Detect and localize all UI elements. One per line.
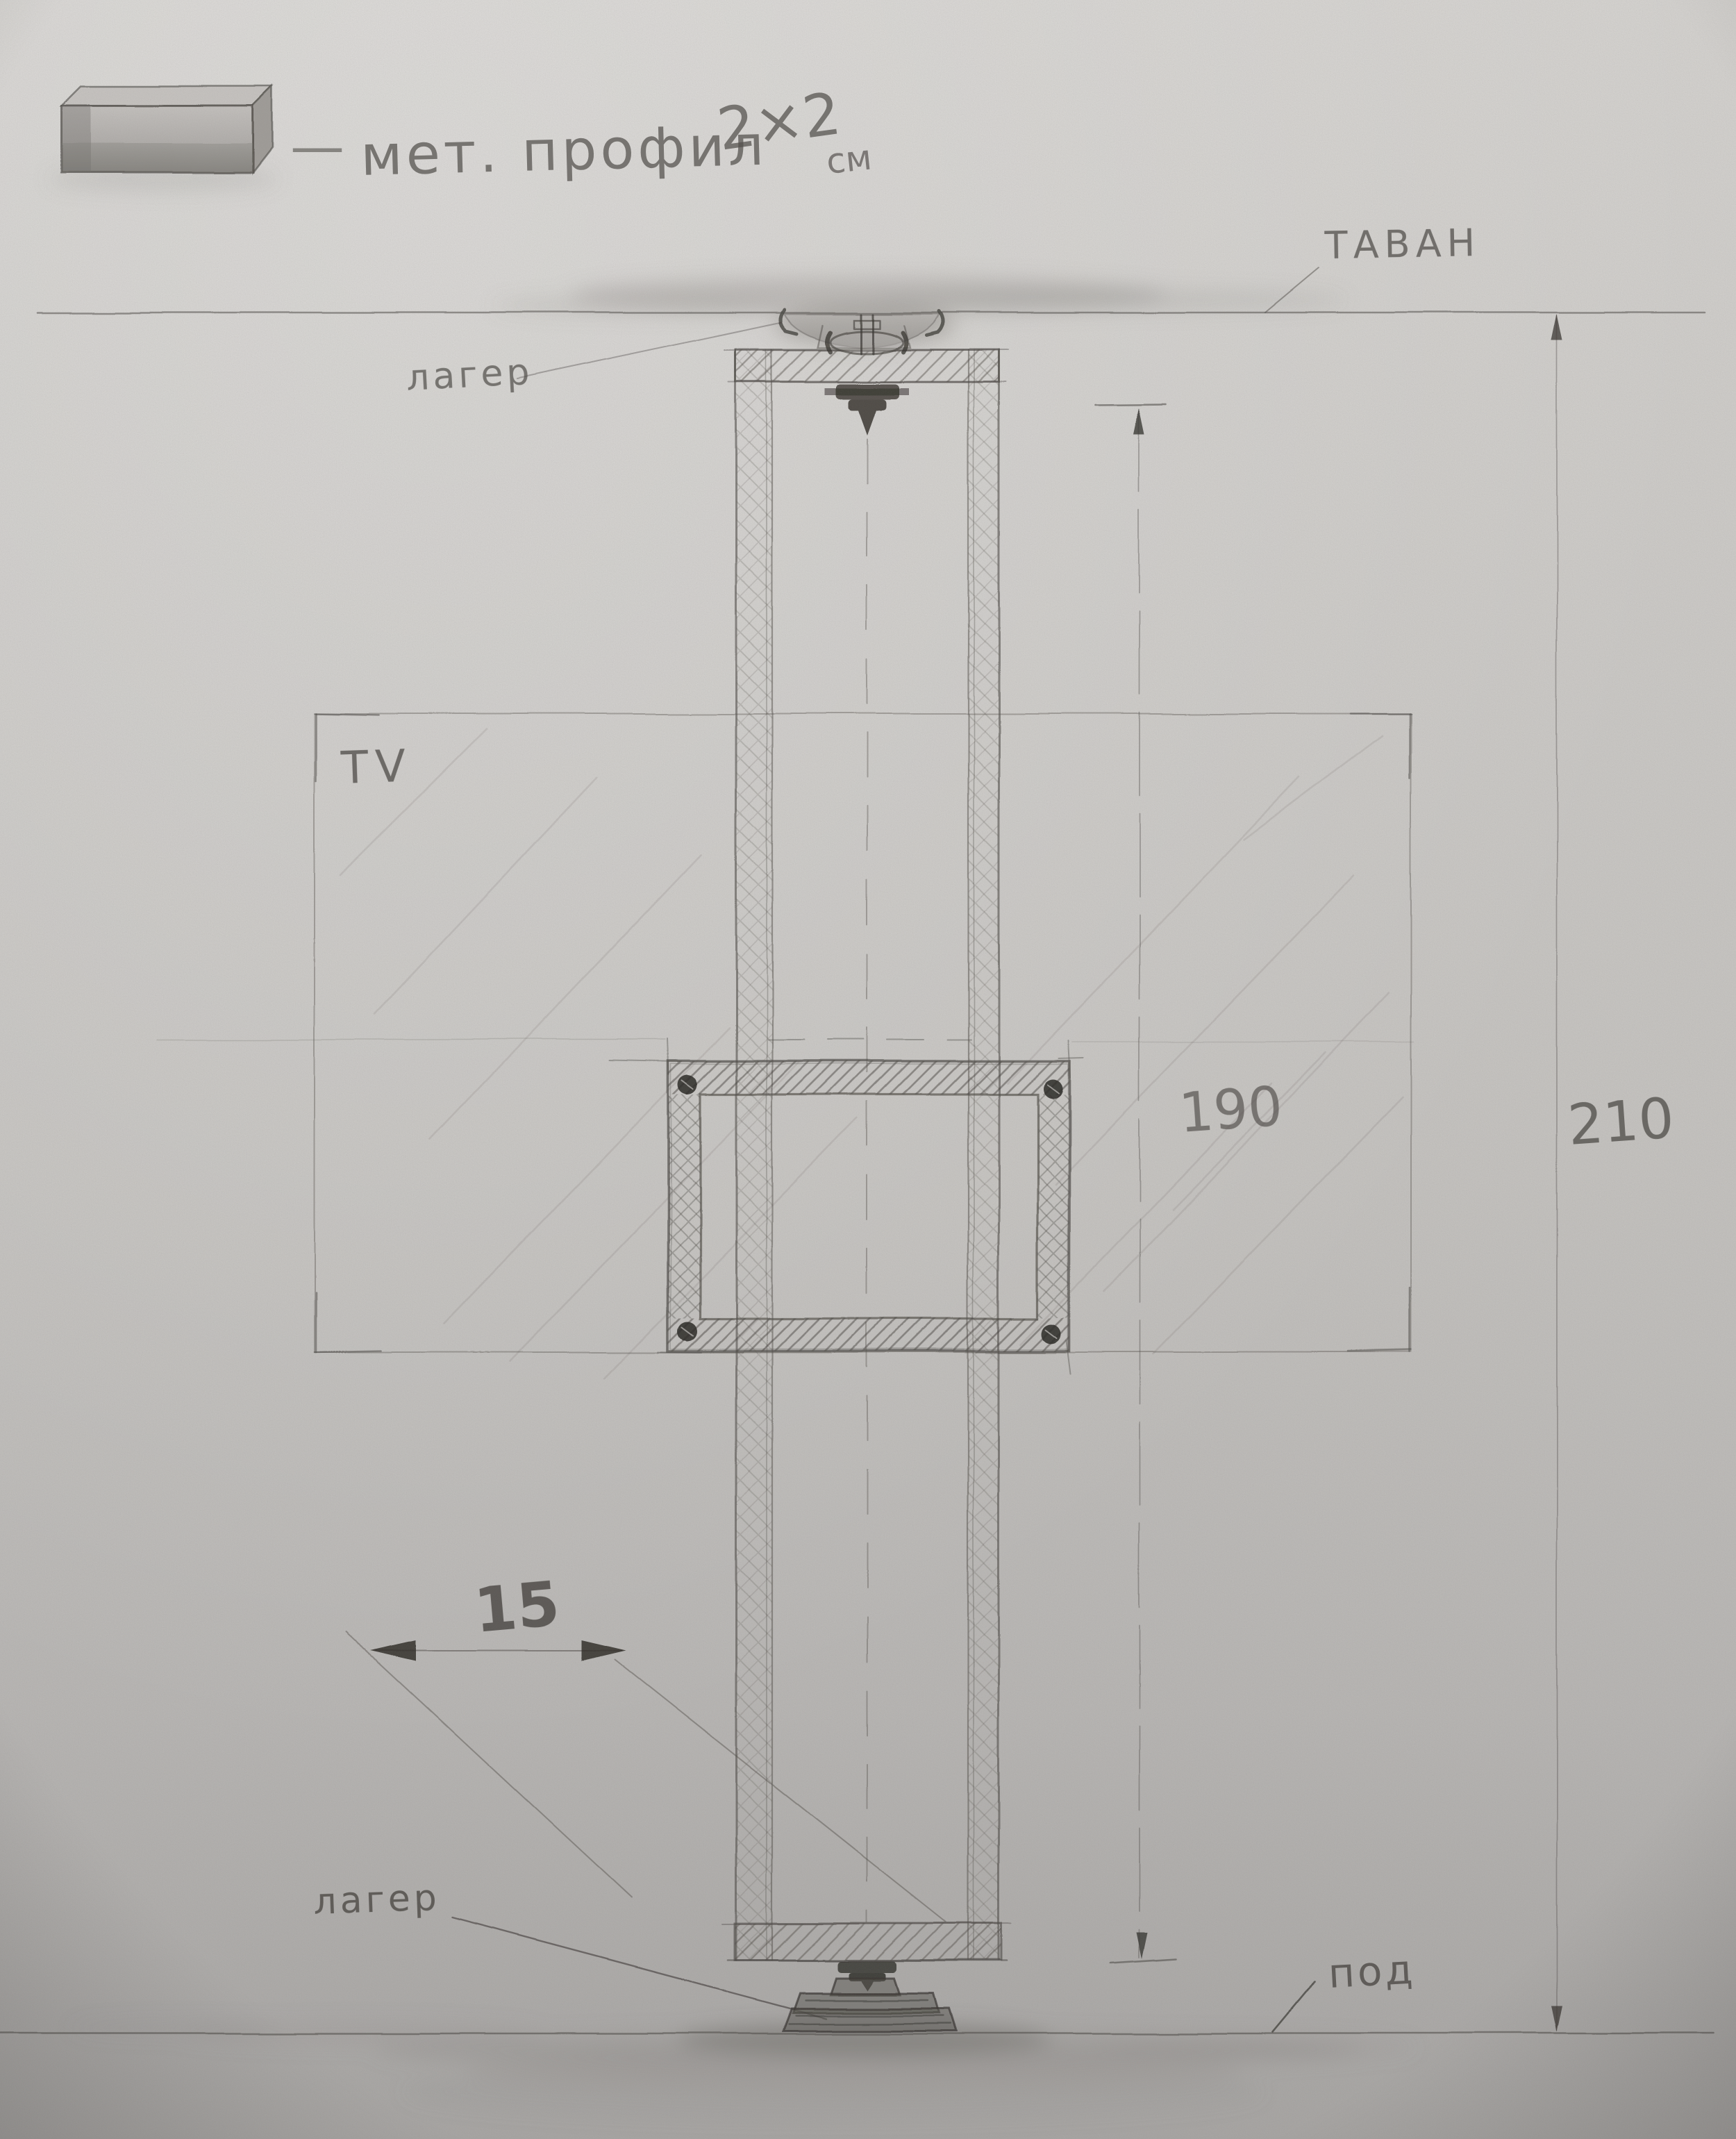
construction-sketch: — мет. профил 2×2 см ТАВАН лагер TV 190 … [0, 0, 1736, 2139]
paper-vignette [0, 0, 1736, 2139]
